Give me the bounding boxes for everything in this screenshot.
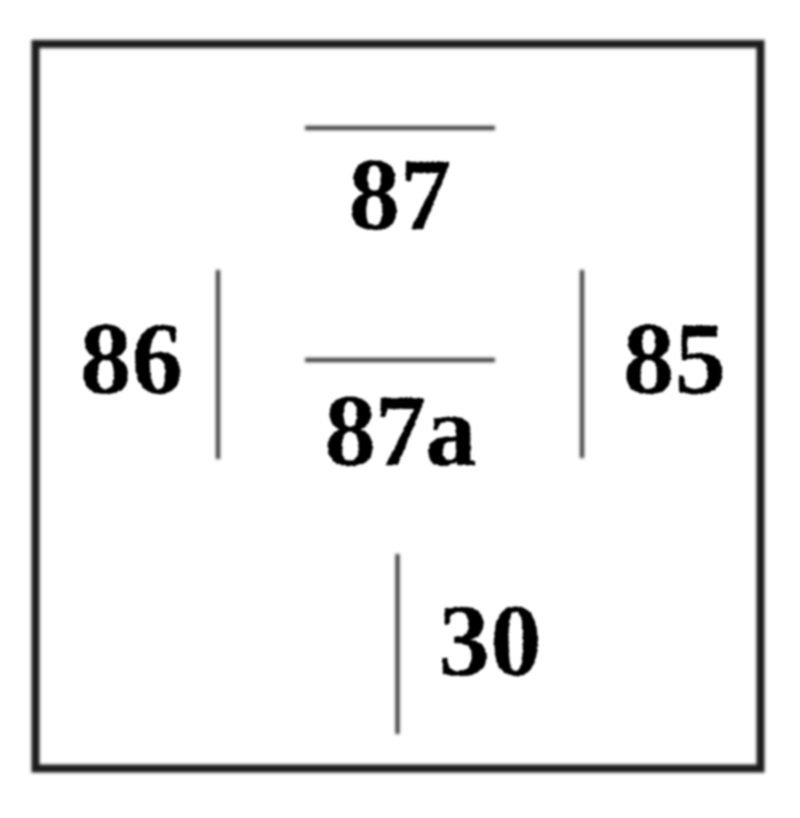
svg-text:86: 86 (80, 302, 183, 416)
svg-text:30: 30 (439, 584, 542, 698)
svg-text:87a: 87a (325, 374, 476, 488)
svg-text:85: 85 (623, 302, 726, 416)
svg-text:87: 87 (349, 138, 452, 252)
